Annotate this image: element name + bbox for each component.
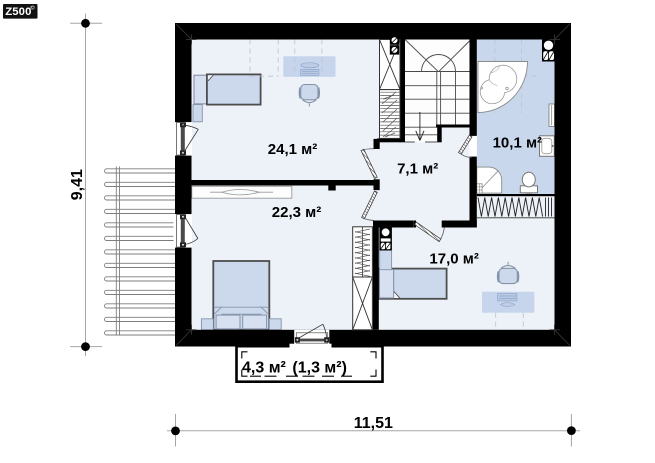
svg-text:(1,3 м²): (1,3 м²) bbox=[292, 360, 347, 377]
svg-text:©: © bbox=[30, 5, 35, 12]
svg-text:9,41: 9,41 bbox=[69, 169, 86, 200]
svg-text:17,0 м²: 17,0 м² bbox=[429, 251, 478, 268]
svg-text:11,51: 11,51 bbox=[354, 415, 393, 432]
svg-text:4,3 м²: 4,3 м² bbox=[242, 360, 286, 377]
svg-text:22,3 м²: 22,3 м² bbox=[272, 204, 321, 221]
svg-text:7,1 м²: 7,1 м² bbox=[397, 160, 438, 177]
svg-text:24,1 м²: 24,1 м² bbox=[268, 141, 317, 158]
svg-text:10,1 м²: 10,1 м² bbox=[493, 134, 542, 151]
svg-text:Z500: Z500 bbox=[5, 6, 31, 18]
